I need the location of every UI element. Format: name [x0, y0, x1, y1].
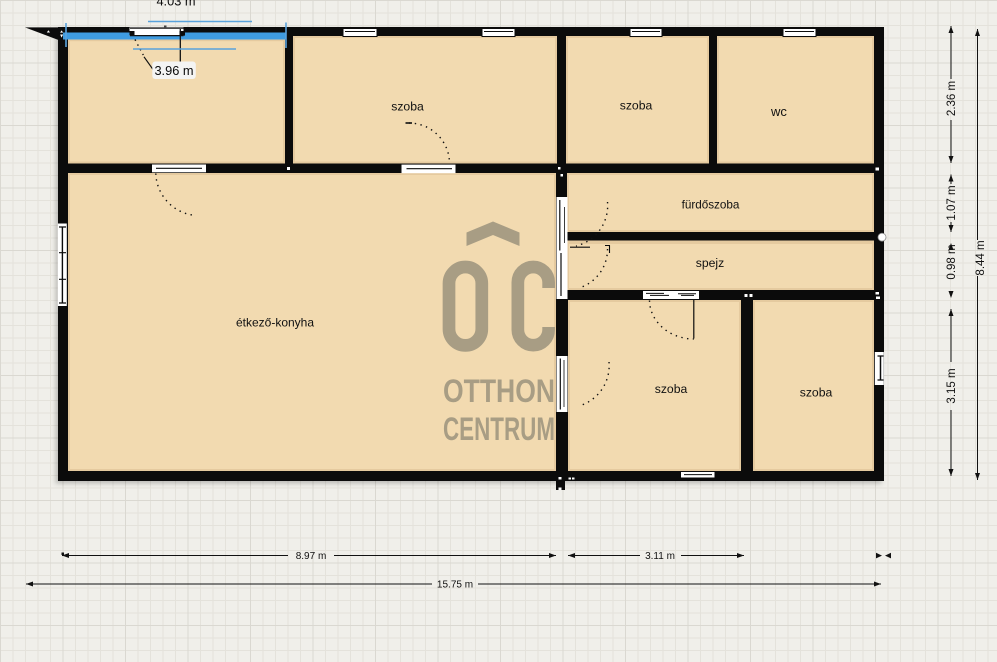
svg-text:szoba: szoba: [800, 386, 833, 400]
svg-text:3.11 m: 3.11 m: [645, 551, 675, 562]
svg-text:3.15 m: 3.15 m: [946, 368, 958, 403]
svg-text:1.07 m: 1.07 m: [946, 185, 958, 220]
svg-text:15.75 m: 15.75 m: [437, 580, 473, 591]
svg-text:fürdőszoba: fürdőszoba: [682, 199, 740, 212]
svg-text:szoba: szoba: [620, 99, 653, 113]
svg-text:8.44 m: 8.44 m: [975, 240, 987, 275]
svg-text:2.36 m: 2.36 m: [946, 81, 958, 116]
svg-text:8.97 m: 8.97 m: [296, 551, 327, 562]
svg-text:0.98 m: 0.98 m: [946, 244, 958, 279]
svg-text:OTTHON: OTTHON: [443, 373, 555, 409]
svg-text:CENTRUM: CENTRUM: [443, 411, 555, 447]
svg-text:spejz: spejz: [696, 256, 724, 270]
svg-text:4.03 m: 4.03 m: [156, 0, 195, 9]
svg-text:étkező-konyha: étkező-konyha: [236, 316, 314, 330]
svg-text:wc: wc: [770, 104, 787, 119]
svg-text:szoba: szoba: [655, 382, 688, 396]
svg-text:3.96 m: 3.96 m: [154, 63, 193, 78]
svg-text:szoba: szoba: [391, 100, 424, 114]
